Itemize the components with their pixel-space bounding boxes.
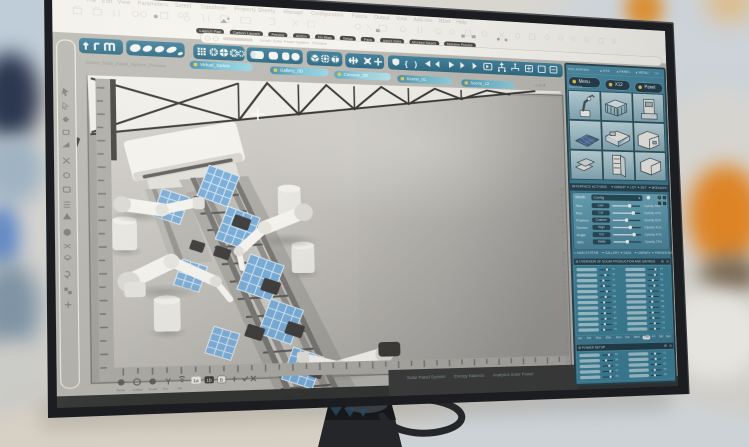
svg-text:Mode: Mode <box>117 388 126 392</box>
svg-text:Smart: Smart <box>148 387 157 391</box>
svg-text:1b: 1b <box>206 378 212 384</box>
svg-text:Net: Net <box>177 386 182 390</box>
svg-text:1a: 1a <box>193 378 199 384</box>
svg-text:Pro: Pro <box>163 387 168 391</box>
svg-text:Collide: Collide <box>133 388 144 392</box>
